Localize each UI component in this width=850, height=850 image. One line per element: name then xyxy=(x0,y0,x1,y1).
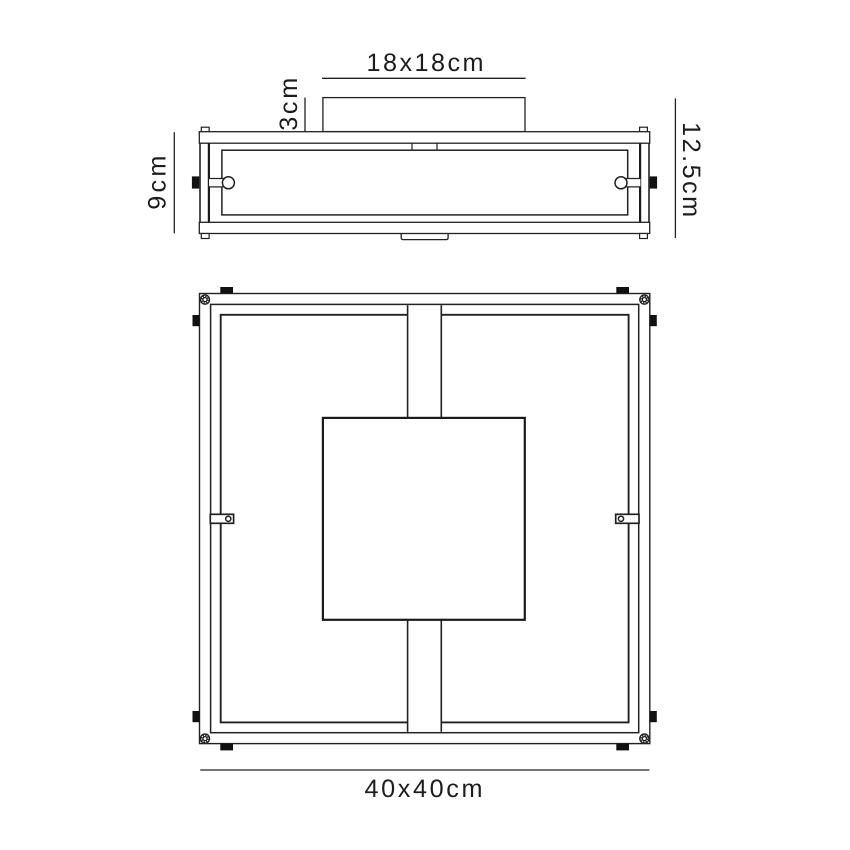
svg-text:9cm: 9cm xyxy=(144,156,172,210)
svg-text:40x40cm: 40x40cm xyxy=(365,775,483,803)
svg-text:18x18cm: 18x18cm xyxy=(367,49,484,77)
svg-text:3cm: 3cm xyxy=(275,78,303,131)
